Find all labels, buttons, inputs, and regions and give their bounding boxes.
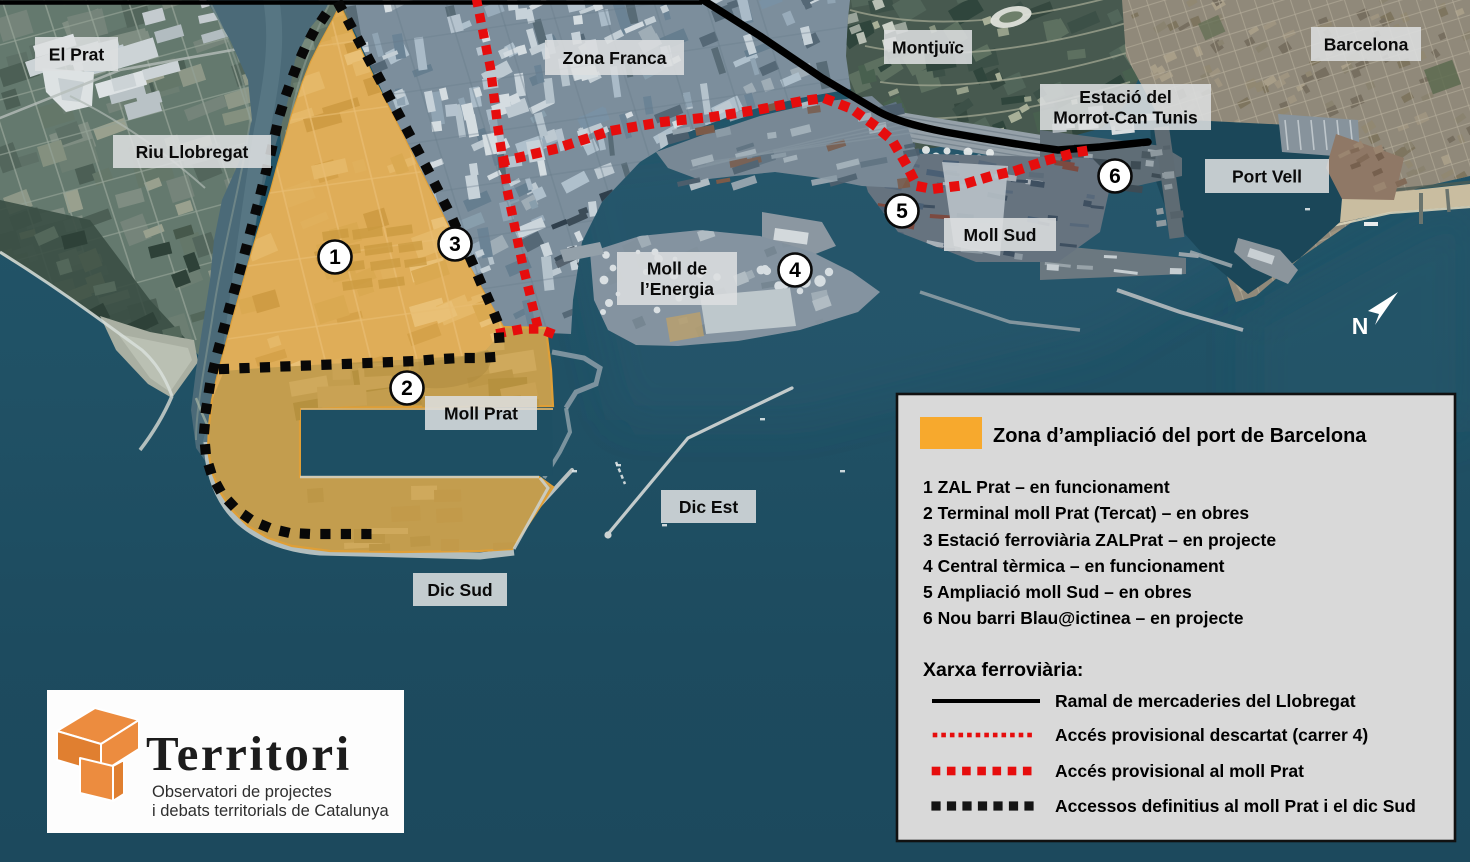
svg-text:4 Central tèrmica – en funcion: 4 Central tèrmica – en funcionament (923, 556, 1225, 576)
svg-text:l’Energia: l’Energia (640, 279, 714, 299)
svg-text:Morrot-Can Tunis: Morrot-Can Tunis (1053, 108, 1198, 128)
svg-text:Accés provisional descartat (c: Accés provisional descartat (carrer 4) (1055, 725, 1368, 745)
svg-text:El Prat: El Prat (49, 44, 105, 64)
svg-text:Zona d’ampliació del port de B: Zona d’ampliació del port de Barcelona (993, 425, 1367, 447)
svg-text:3: 3 (449, 233, 461, 256)
svg-text:i debats territorials de Catal: i debats territorials de Catalunya (152, 802, 389, 820)
svg-text:Zona Franca: Zona Franca (562, 48, 666, 68)
svg-text:6: 6 (1109, 165, 1121, 188)
svg-text:Observatori de projectes: Observatori de projectes (152, 783, 332, 801)
svg-text:6 Nou barri Blau@ictinea – en: 6 Nou barri Blau@ictinea – en projecte (923, 608, 1244, 628)
svg-text:1: 1 (329, 246, 341, 269)
svg-text:2: 2 (401, 377, 413, 400)
svg-text:2 Terminal moll Prat (Tercat): 2 Terminal moll Prat (Tercat) – en obres (923, 503, 1249, 523)
svg-text:Riu Llobregat: Riu Llobregat (136, 142, 249, 162)
svg-text:Accés provisional al moll Prat: Accés provisional al moll Prat (1055, 761, 1304, 781)
svg-text:3 Estació ferroviària ZALPrat: 3 Estació ferroviària ZALPrat – en proje… (923, 530, 1276, 550)
svg-text:Dic Sud: Dic Sud (427, 580, 492, 600)
svg-text:5 Ampliació moll Sud – en obre: 5 Ampliació moll Sud – en obres (923, 582, 1192, 602)
svg-text:Accessos definitius al moll Pr: Accessos definitius al moll Prat i el di… (1055, 796, 1416, 816)
svg-text:4: 4 (789, 259, 801, 282)
svg-text:Estació del: Estació del (1079, 87, 1171, 107)
svg-text:Moll de: Moll de (647, 259, 708, 279)
svg-text:Moll Prat: Moll Prat (444, 403, 518, 423)
svg-text:Port Vell: Port Vell (1232, 166, 1302, 186)
svg-text:Barcelona: Barcelona (1324, 34, 1409, 54)
svg-text:Ramal de mercaderies del Llobr: Ramal de mercaderies del Llobregat (1055, 691, 1356, 711)
svg-text:Dic Est: Dic Est (679, 497, 738, 517)
svg-text:Xarxa ferroviària:: Xarxa ferroviària: (923, 659, 1083, 681)
svg-text:Montjuïc: Montjuïc (892, 37, 964, 57)
svg-text:Territori: Territori (146, 726, 352, 781)
svg-text:5: 5 (896, 200, 908, 223)
svg-text:N: N (1352, 313, 1369, 339)
svg-text:1 ZAL Prat – en funcionament: 1 ZAL Prat – en funcionament (923, 477, 1170, 497)
svg-text:Moll Sud: Moll Sud (964, 225, 1037, 245)
